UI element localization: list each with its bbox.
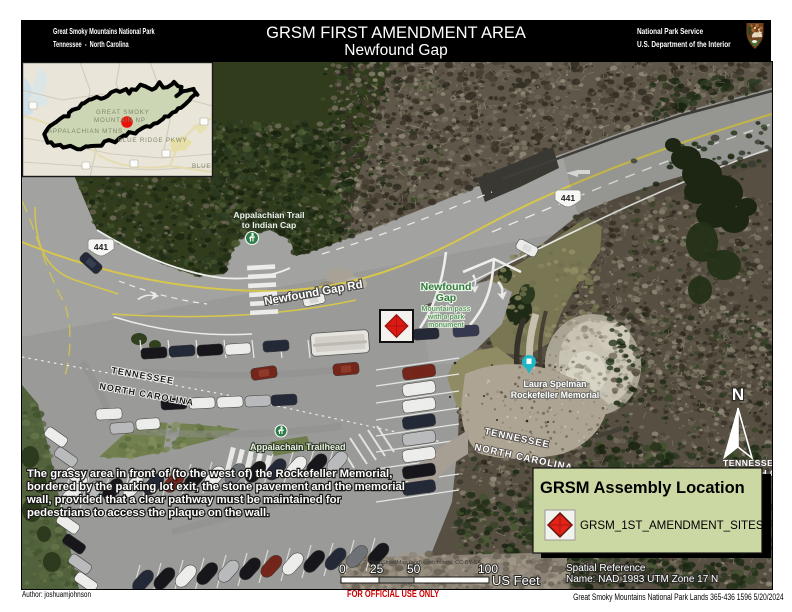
- svg-text:25: 25: [370, 562, 384, 576]
- svg-text:GREAT SMOKY: GREAT SMOKY: [96, 109, 150, 116]
- svg-text:BLUE: BLUE: [192, 163, 211, 170]
- svg-text:GRSM Assembly Location: GRSM Assembly Location: [540, 479, 745, 497]
- svg-text:TENNESSEE: TENNESSEE: [723, 458, 773, 468]
- svg-text:50: 50: [407, 562, 421, 576]
- svg-text:APPALACHIAN MTNS: APPALACHIAN MTNS: [48, 128, 123, 135]
- svg-text:US Feet: US Feet: [492, 573, 540, 588]
- svg-text:441: 441: [94, 242, 108, 252]
- svg-text:BLUE RIDGE PKWY: BLUE RIDGE PKWY: [118, 137, 187, 144]
- svg-text:Name: NAD 1983 UTM Zone 17 N: Name: NAD 1983 UTM Zone 17 N: [566, 574, 718, 585]
- svg-text:pedestrians to access the plaq: pedestrians to access the plaque on the …: [27, 507, 269, 519]
- svg-text:wall, provided that a clear pa: wall, provided that a clear pathway must…: [26, 494, 341, 506]
- svg-text:0: 0: [339, 562, 346, 576]
- svg-text:N: N: [732, 385, 744, 404]
- svg-text:441: 441: [561, 193, 575, 203]
- svg-text:Gap: Gap: [436, 292, 456, 304]
- svg-text:Spatial Reference: Spatial Reference: [566, 563, 646, 574]
- svg-text:with a park: with a park: [427, 314, 465, 321]
- svg-text:MOUNTAIN NP: MOUNTAIN NP: [94, 117, 146, 124]
- svg-text:to Indian Cap: to Indian Cap: [242, 220, 296, 230]
- svg-text:Appalachian Trail: Appalachian Trail: [233, 210, 304, 220]
- svg-text:Appalachain Trailhead: Appalachain Trailhead: [250, 442, 346, 452]
- svg-text:The grassy area in front of (t: The grassy area in front of (to the west…: [27, 468, 392, 480]
- svg-text:GRSM_1ST_AMENDMENT_SITES: GRSM_1ST_AMENDMENT_SITES: [580, 519, 764, 532]
- svg-text:bordered by the parking lot ex: bordered by the parking lot exit, the st…: [27, 481, 405, 493]
- svg-text:Laura Spelman: Laura Spelman: [523, 379, 586, 389]
- svg-text:Mountain pass: Mountain pass: [421, 306, 470, 313]
- svg-text:Rockefeller Memorial: Rockefeller Memorial: [511, 390, 600, 400]
- svg-text:monument: monument: [428, 322, 464, 329]
